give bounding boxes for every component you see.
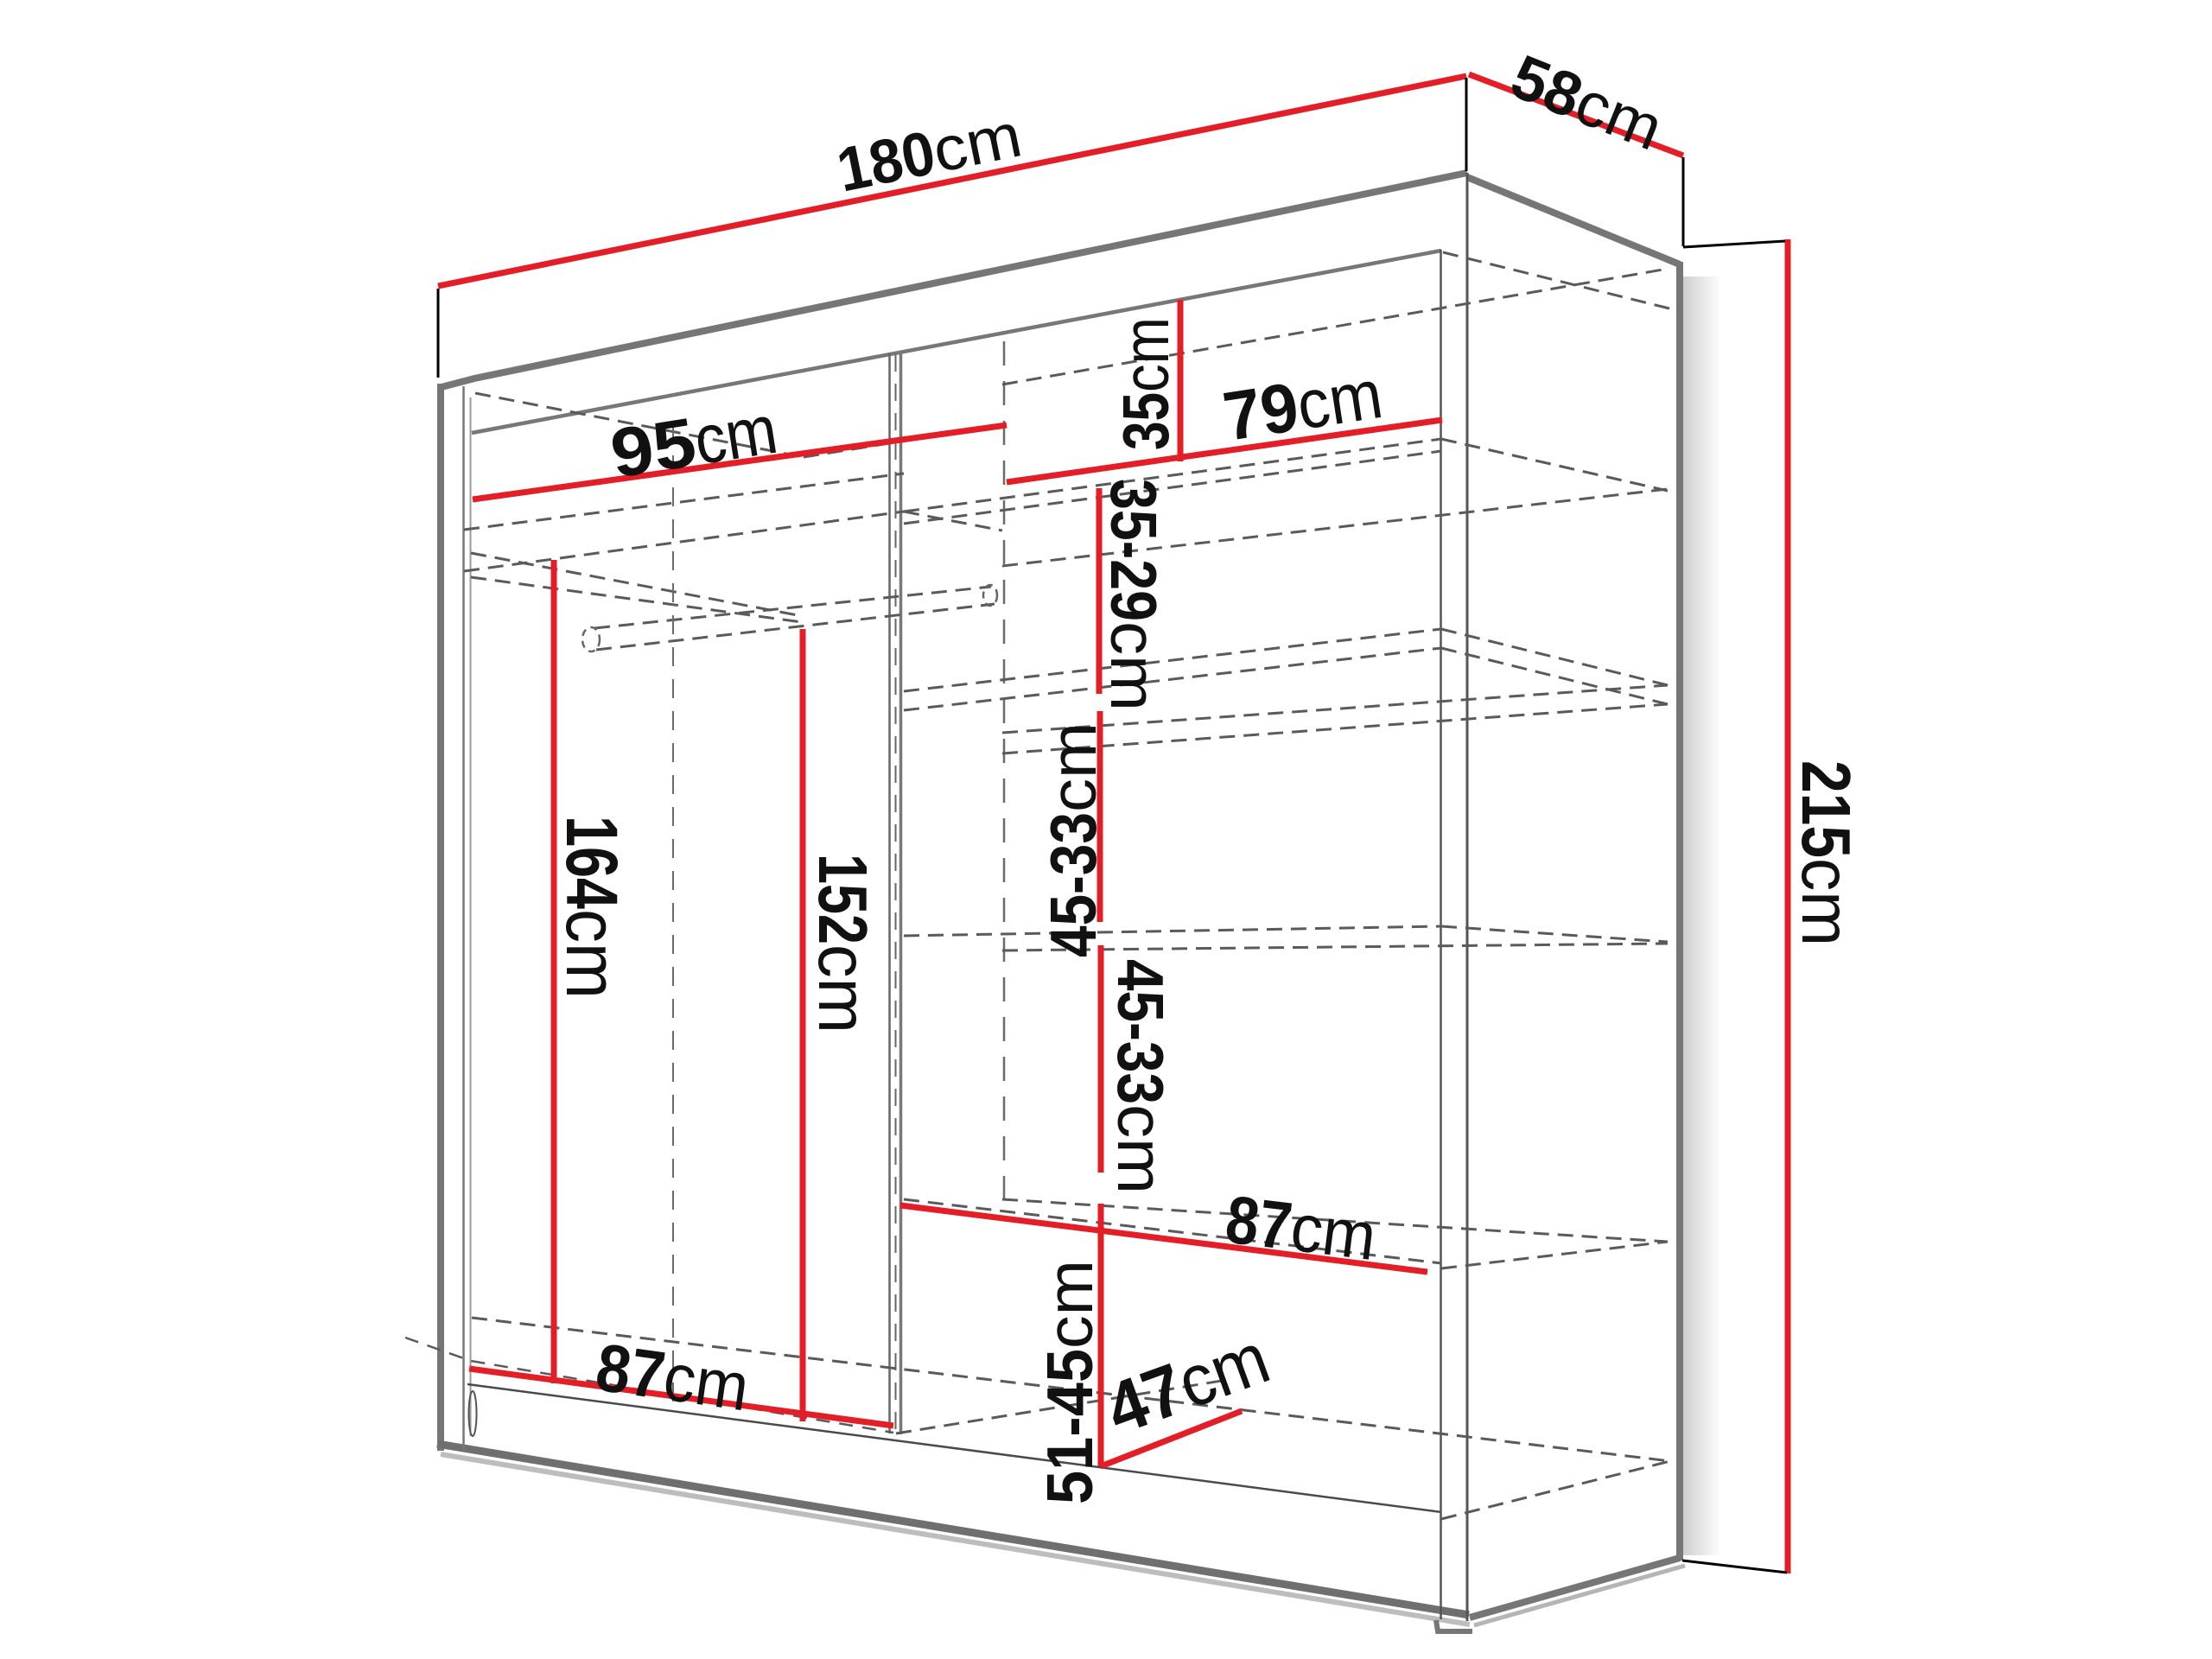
svg-text:45-33cm: 45-33cm: [1037, 722, 1109, 957]
svg-text:35cm: 35cm: [1109, 317, 1182, 450]
svg-text:35-29cm: 35-29cm: [1097, 479, 1170, 711]
svg-text:51-45cm: 51-45cm: [1033, 1260, 1106, 1504]
svg-text:215cm: 215cm: [1788, 760, 1865, 946]
svg-text:45-33cm: 45-33cm: [1104, 959, 1177, 1194]
svg-text:152cm: 152cm: [804, 854, 881, 1033]
svg-text:164cm: 164cm: [551, 816, 632, 999]
